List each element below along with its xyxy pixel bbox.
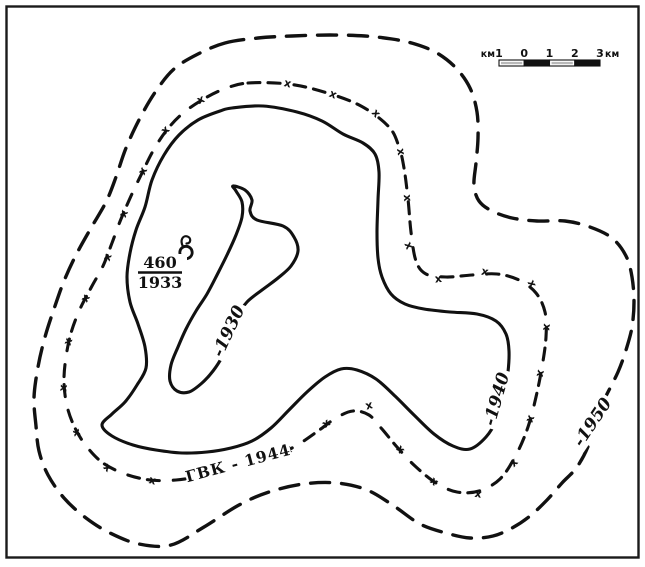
scale-bar: км 1 0 1 2 3 км xyxy=(481,47,619,66)
scale-seg-dark-2 xyxy=(575,60,600,66)
scale-seg-light-1-stripe xyxy=(501,62,522,64)
scale-tick-2: 2 xyxy=(571,47,579,60)
scale-tick-1b: 1 xyxy=(546,47,554,60)
scale-seg-light-2-stripe xyxy=(552,62,573,64)
well-year-text: 1933 xyxy=(138,273,183,292)
well-label: 460 1933 xyxy=(133,253,187,292)
contour-label-1940: -1940 xyxy=(478,367,515,430)
scale-tick-1a: 1 xyxy=(495,47,503,60)
scale-unit-left: км xyxy=(481,49,495,60)
well-number-text: 460 xyxy=(143,253,176,272)
scale-unit-right: км xyxy=(605,49,619,60)
scale-tick-3: 3 xyxy=(596,47,604,60)
gwc-x-ticks: xxxxxxxxxxxxxxxxxxxxxxxxxxxxxxxxxx xyxy=(0,0,557,502)
scale-seg-dark-1 xyxy=(524,60,549,66)
contour-label-1950-text: -1950 xyxy=(569,394,616,450)
contour-label-1950: -1950 xyxy=(567,392,618,453)
contour-label-1940-text: -1940 xyxy=(480,370,514,428)
contour-label-1930: -1930 xyxy=(206,300,250,363)
map-figure: xxxxxxxxxxxxxxxxxxxxxxxxxxxxxxxxxx -1930… xyxy=(0,0,645,567)
scale-tick-0: 0 xyxy=(520,47,528,60)
contour-1930-line xyxy=(170,186,299,393)
contour-label-1930-text: -1930 xyxy=(208,302,249,360)
map-canvas: xxxxxxxxxxxxxxxxxxxxxxxxxxxxxxxxxx -1930… xyxy=(0,0,645,567)
